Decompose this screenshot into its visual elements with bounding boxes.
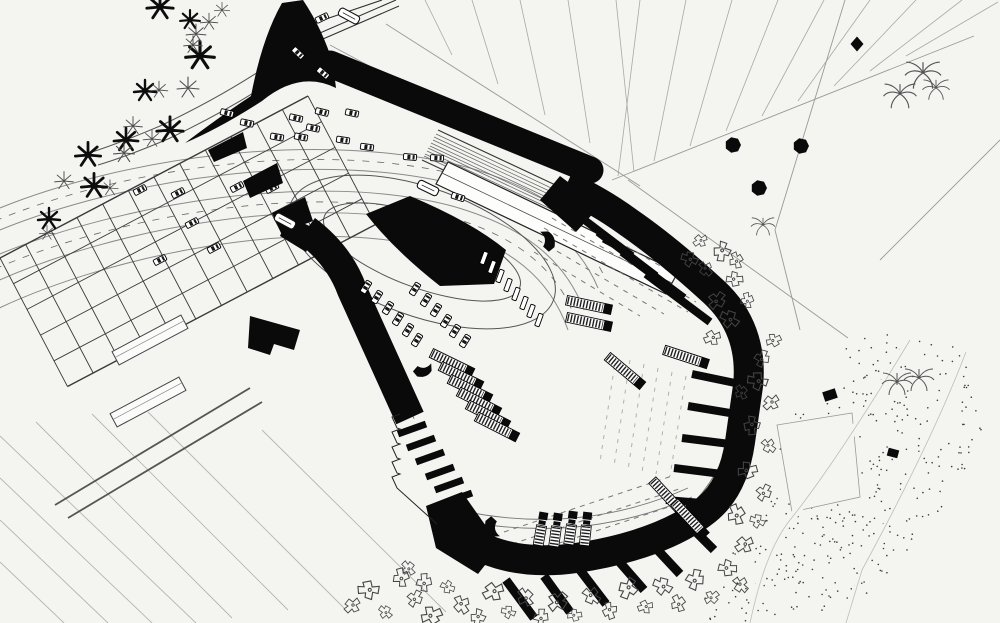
dune-pond — [777, 413, 860, 512]
paper-background — [0, 0, 1000, 623]
site-plan-drawing — [0, 0, 1000, 623]
site-plan-page — [0, 0, 1000, 623]
